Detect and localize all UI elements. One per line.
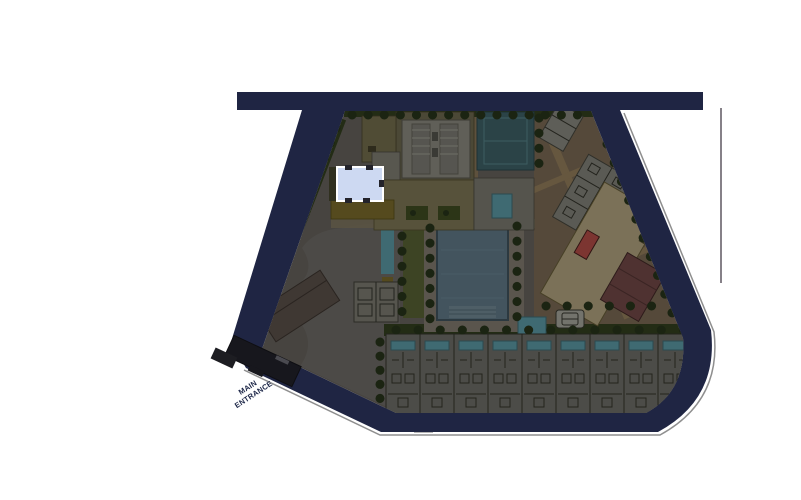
highlighted-building[interactable]: [337, 165, 384, 203]
hedge-side: [329, 167, 337, 201]
site-plan-canvas: MAIN ENTRANCE: [0, 0, 801, 500]
roof-planter: [406, 206, 428, 220]
plunge-pool: [492, 194, 512, 218]
door-notch: [363, 198, 370, 203]
door-notch: [366, 165, 373, 170]
door-notch: [379, 180, 384, 187]
pavilion-building[interactable]: [354, 282, 398, 322]
parking-pad-icon: [556, 310, 584, 328]
window-mark: [368, 146, 376, 152]
stair-core: [412, 124, 430, 174]
pool-steps: [449, 306, 496, 318]
elevator-cell: [432, 148, 438, 157]
edge-artifact: [720, 108, 722, 283]
elevator-cell: [432, 132, 438, 141]
stair-core: [440, 124, 458, 174]
tree-icon: [410, 210, 416, 216]
door-notch: [345, 165, 352, 170]
reflecting-pond: [381, 228, 394, 274]
terrace-strip: [331, 200, 394, 219]
door-notch: [345, 198, 352, 203]
tree-icon: [443, 210, 449, 216]
